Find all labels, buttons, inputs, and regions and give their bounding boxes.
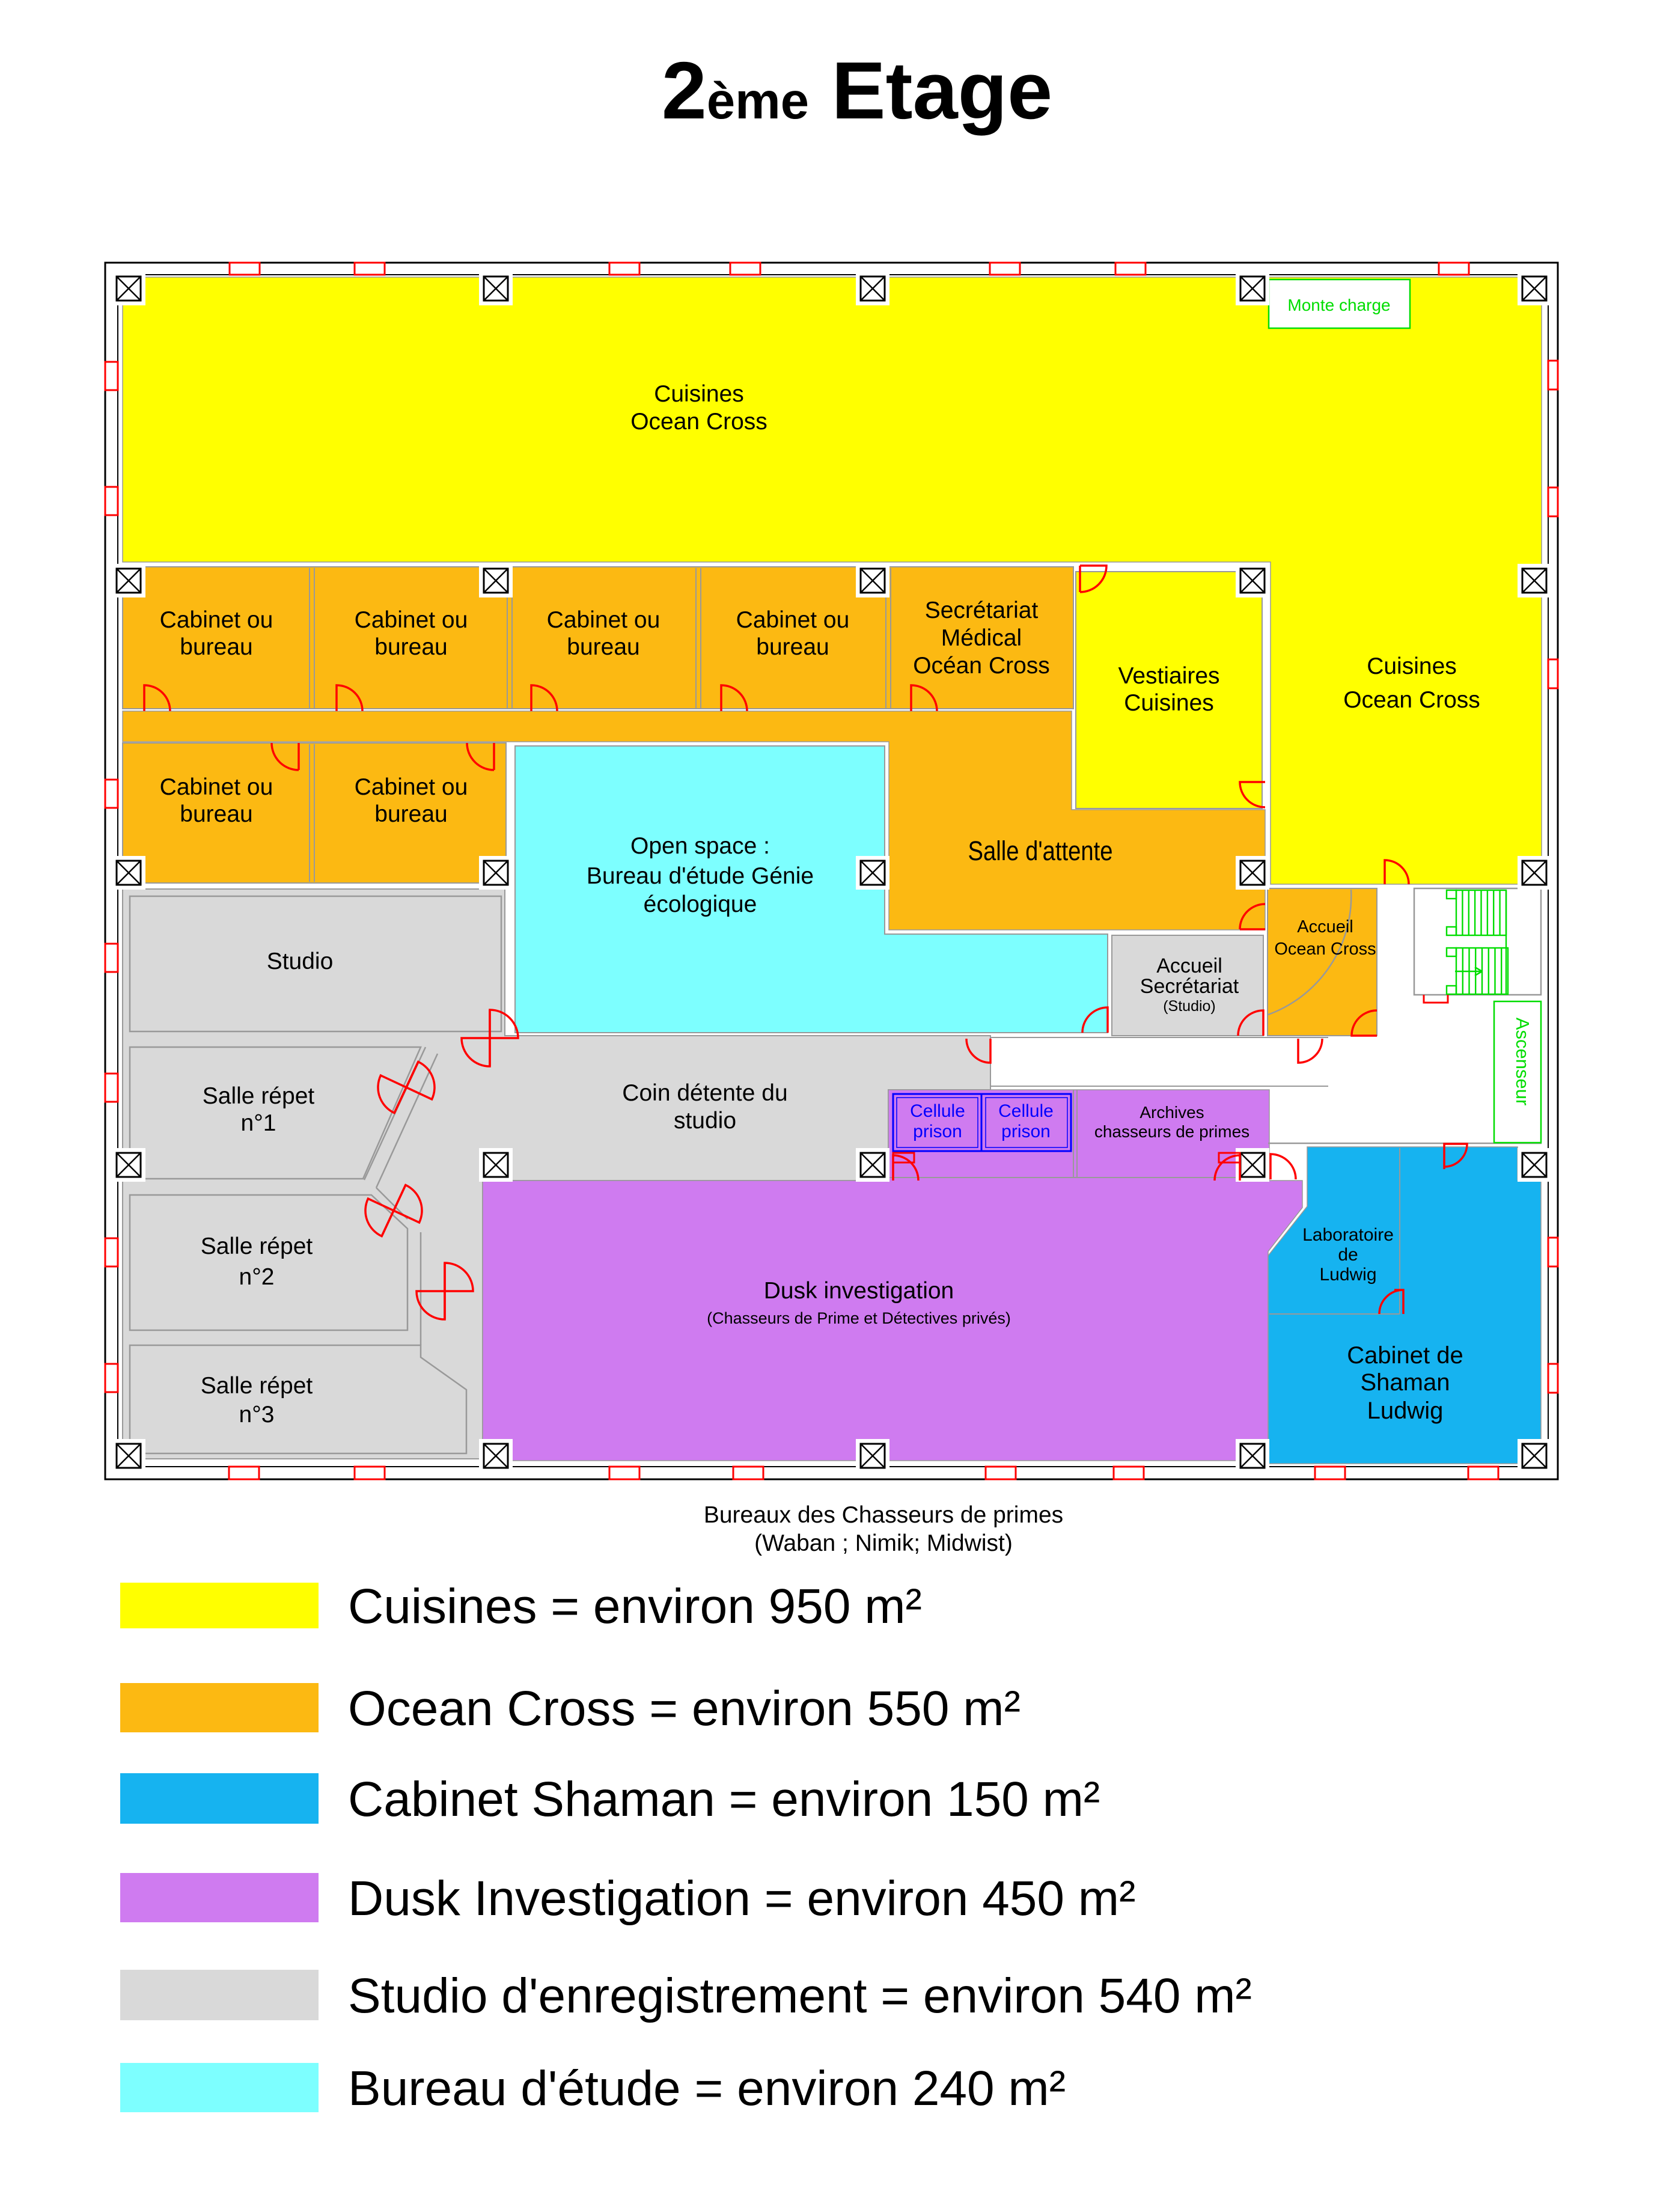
svg-text:Cellule: Cellule [998, 1101, 1054, 1121]
svg-text:Vestiaires: Vestiaires [1118, 663, 1219, 689]
svg-text:Cabinet ou: Cabinet ou [160, 607, 273, 633]
svg-text:n°2: n°2 [239, 1264, 275, 1290]
svg-text:Cellule: Cellule [910, 1101, 965, 1121]
svg-text:Ocean Cross: Ocean Cross [630, 409, 767, 435]
svg-text:Bureaux des Chasseurs de prime: Bureaux des Chasseurs de primes [704, 1502, 1063, 1528]
svg-text:(Studio): (Studio) [1163, 998, 1216, 1015]
svg-text:Cuisines: Cuisines [1367, 653, 1457, 679]
svg-text:Bureau d'étude = environ 240 m: Bureau d'étude = environ 240 m² [348, 2061, 1066, 2116]
svg-text:Salle d'attente: Salle d'attente [968, 836, 1113, 866]
svg-text:Shaman: Shaman [1361, 1369, 1450, 1396]
svg-text:bureau: bureau [374, 634, 447, 660]
svg-text:Cabinet ou: Cabinet ou [355, 774, 468, 800]
svg-text:(Chasseurs de Prime et Détecti: (Chasseurs de Prime et Détectives privés… [707, 1309, 1011, 1327]
svg-text:Ludwig: Ludwig [1319, 1265, 1376, 1285]
svg-text:bureau: bureau [567, 634, 639, 660]
svg-text:(Waban ; Nimik; Midwist): (Waban ; Nimik; Midwist) [754, 1530, 1013, 1556]
svg-text:Cabinet ou: Cabinet ou [736, 607, 850, 633]
svg-text:Ludwig: Ludwig [1367, 1398, 1444, 1424]
svg-text:Médical: Médical [941, 625, 1022, 651]
svg-text:Bureau d'étude Génie: Bureau d'étude Génie [587, 863, 814, 889]
svg-text:Cabinet de: Cabinet de [1347, 1342, 1463, 1369]
svg-text:bureau: bureau [180, 801, 252, 827]
svg-text:prison: prison [1001, 1122, 1051, 1141]
svg-text:Coin détente du: Coin détente du [622, 1080, 787, 1106]
svg-text:Cabinet ou: Cabinet ou [160, 774, 273, 800]
svg-text:Cuisines: Cuisines [1124, 690, 1214, 716]
svg-text:Laboratoire: Laboratoire [1302, 1225, 1394, 1245]
svg-text:de: de [1338, 1245, 1358, 1265]
svg-text:bureau: bureau [756, 634, 829, 660]
svg-text:chasseurs de primes: chasseurs de primes [1094, 1122, 1249, 1141]
svg-text:Cuisines = environ 950 m²: Cuisines = environ 950 m² [348, 1579, 922, 1634]
svg-text:Cabinet Shaman = environ 150 m: Cabinet Shaman = environ 150 m² [348, 1772, 1100, 1827]
svg-text:Studio d'enregistrement = envi: Studio d'enregistrement = environ 540 m² [348, 1969, 1252, 2023]
svg-text:studio: studio [674, 1108, 736, 1134]
svg-text:Dusk investigation: Dusk investigation [764, 1278, 954, 1304]
svg-text:Secrétariat: Secrétariat [1140, 975, 1239, 998]
svg-text:Ocean Cross: Ocean Cross [1343, 687, 1480, 713]
svg-text:Monte charge: Monte charge [1287, 296, 1390, 314]
svg-text:Océan Cross: Océan Cross [913, 653, 1050, 679]
svg-text:Ocean Cross: Ocean Cross [1274, 939, 1376, 959]
svg-text:écologique: écologique [644, 891, 757, 917]
svg-text:n°3: n°3 [239, 1402, 275, 1428]
svg-text:prison: prison [913, 1122, 962, 1141]
svg-text:n°1: n°1 [241, 1110, 276, 1136]
svg-text:bureau: bureau [180, 634, 252, 660]
svg-text:Salle répet: Salle répet [201, 1373, 313, 1399]
svg-text:Salle répet: Salle répet [203, 1083, 315, 1109]
svg-text:Studio: Studio [267, 949, 334, 974]
svg-text:Cuisines: Cuisines [654, 381, 744, 407]
svg-text:Cabinet ou: Cabinet ou [355, 607, 468, 633]
svg-text:Archives: Archives [1140, 1103, 1204, 1122]
svg-text:Cabinet ou: Cabinet ou [547, 607, 661, 633]
svg-text:Secrétariat: Secrétariat [925, 597, 1039, 623]
svg-text:Salle répet: Salle répet [201, 1233, 313, 1259]
svg-text:bureau: bureau [374, 801, 447, 827]
svg-text:Accueil: Accueil [1297, 917, 1353, 936]
svg-text:Accueil: Accueil [1156, 955, 1222, 977]
svg-text:Open space :: Open space : [630, 833, 770, 859]
svg-text:Ocean Cross = environ 550 m²: Ocean Cross = environ 550 m² [348, 1681, 1021, 1736]
svg-text:Dusk Investigation = environ 4: Dusk Investigation = environ 450 m² [348, 1871, 1135, 1926]
svg-text:Ascenseur: Ascenseur [1512, 1018, 1533, 1105]
